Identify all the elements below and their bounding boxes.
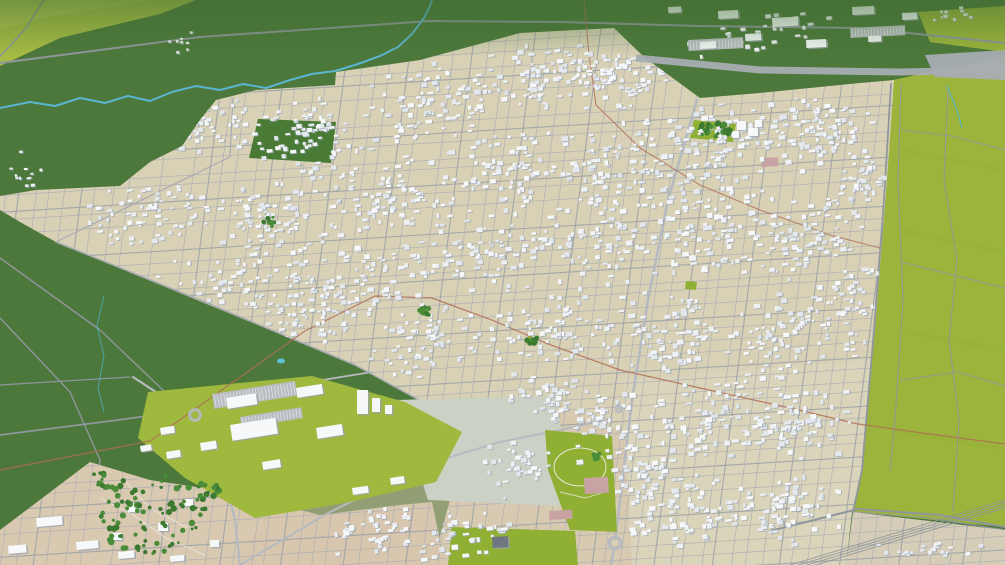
city-3d-render <box>0 0 1005 565</box>
vignette-layer <box>0 0 1005 565</box>
city-map-svg <box>0 0 1005 565</box>
